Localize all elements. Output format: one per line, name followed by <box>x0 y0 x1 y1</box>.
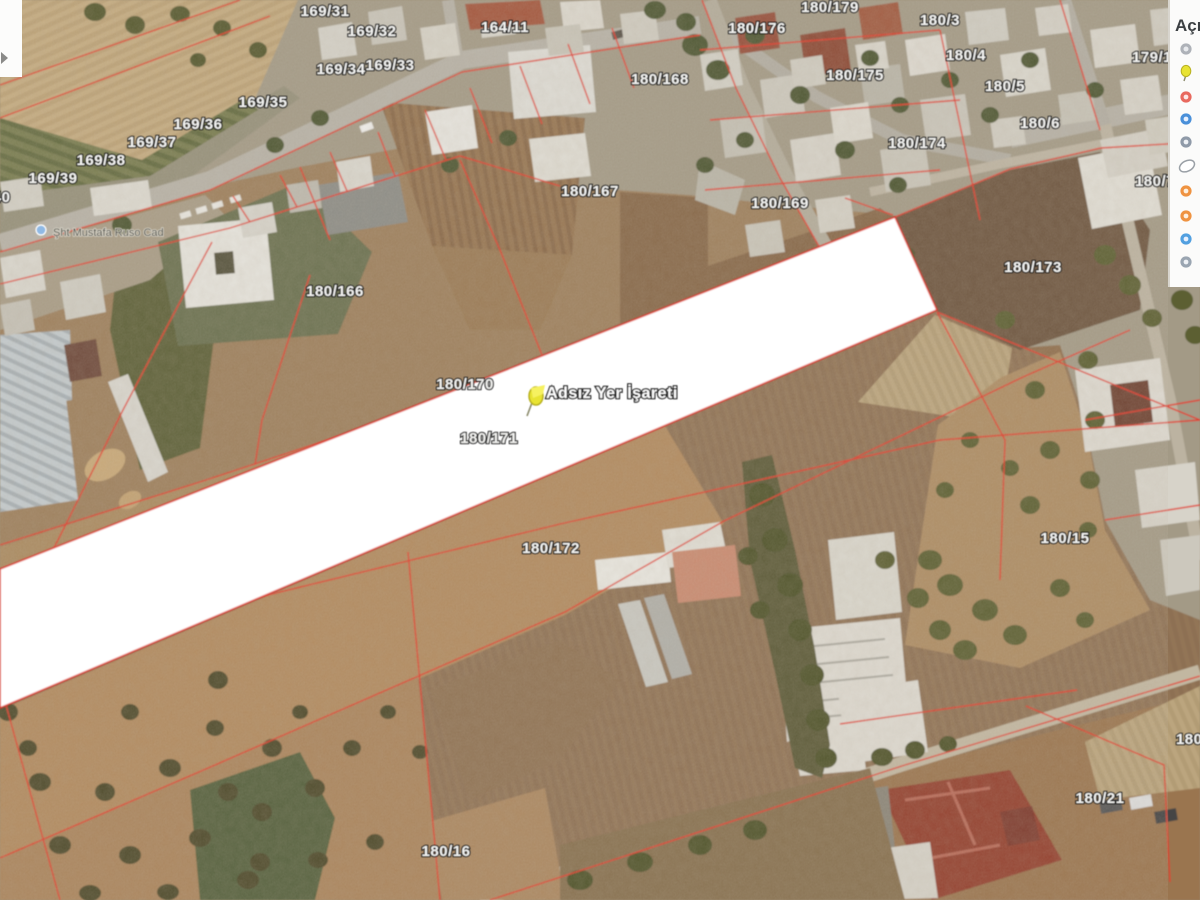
svg-text:180/171: 180/171 <box>460 430 518 447</box>
svg-text:169/37: 169/37 <box>128 134 177 151</box>
svg-text:169/31: 169/31 <box>301 3 350 20</box>
svg-text:180/168: 180/168 <box>631 71 689 88</box>
svg-text:180/5: 180/5 <box>985 78 1025 95</box>
svg-text:Adsız Yer İşareti: Adsız Yer İşareti <box>546 384 678 402</box>
svg-text:164/11: 164/11 <box>481 19 529 36</box>
svg-text:180/169: 180/169 <box>751 195 809 212</box>
svg-text:169/33: 169/33 <box>366 57 415 74</box>
svg-text:180/16: 180/16 <box>422 843 471 860</box>
svg-text:180/173: 180/173 <box>1004 259 1062 276</box>
svg-text:180/176: 180/176 <box>728 20 786 37</box>
svg-text:180/172: 180/172 <box>522 540 580 557</box>
svg-text:180/2: 180/2 <box>1176 731 1200 748</box>
svg-text:180/21: 180/21 <box>1076 790 1125 807</box>
svg-text:180/179: 180/179 <box>801 0 859 16</box>
svg-text:180/6: 180/6 <box>1020 115 1060 132</box>
svg-text:169/34: 169/34 <box>317 61 366 78</box>
svg-text:180/174: 180/174 <box>888 135 946 152</box>
svg-text:180/166: 180/166 <box>306 283 364 300</box>
svg-text:Açı: Açı <box>1175 16 1200 35</box>
svg-text:180/167: 180/167 <box>561 183 619 200</box>
svg-text:169/39: 169/39 <box>29 170 78 187</box>
svg-text:180/175: 180/175 <box>826 67 884 84</box>
svg-text:169/32: 169/32 <box>348 23 397 40</box>
svg-text:179/1: 179/1 <box>1132 49 1172 66</box>
svg-text:169/40: 169/40 <box>0 189 10 206</box>
svg-text:180/15: 180/15 <box>1041 530 1090 547</box>
svg-text:169/36: 169/36 <box>174 116 223 133</box>
svg-text:180/3: 180/3 <box>920 12 960 29</box>
svg-text:169/38: 169/38 <box>77 152 126 169</box>
svg-text:Şht Mustafa Ruso Cad: Şht Mustafa Ruso Cad <box>53 227 164 239</box>
svg-text:180/4: 180/4 <box>946 47 986 64</box>
svg-text:180/170: 180/170 <box>436 376 494 393</box>
svg-text:169/35: 169/35 <box>239 94 288 111</box>
